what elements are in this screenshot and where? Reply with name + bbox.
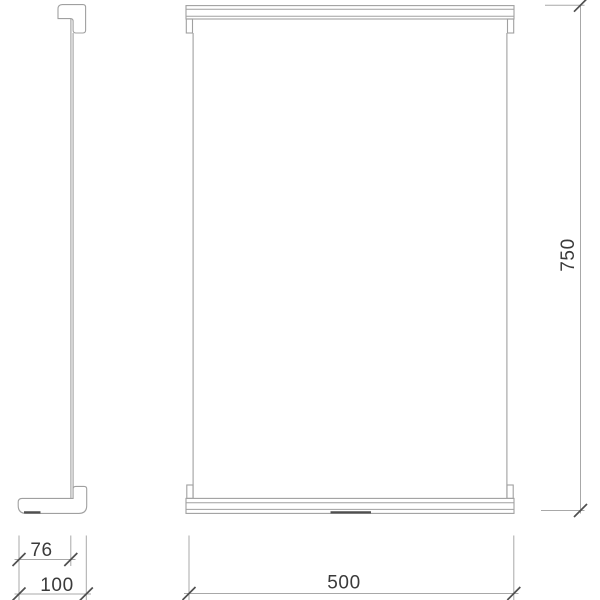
bottom-left-end-tab — [187, 485, 193, 498]
top-left-end-tab — [186, 19, 192, 33]
top-right-end-tab — [508, 19, 514, 33]
front-top-rail — [186, 6, 514, 19]
front-bottom-rail — [186, 498, 514, 513]
bottom-right-end-tab — [507, 485, 513, 498]
side-profile-view — [18, 5, 87, 514]
dimension-label-depth-inner: 76 — [30, 540, 52, 561]
drawing-canvas: 750 500 76 100 — [0, 0, 600, 600]
dimension-height: 750 — [541, 0, 587, 517]
dimension-label-depth-overall: 100 — [40, 575, 74, 596]
dimension-label-width: 500 — [327, 573, 361, 594]
dimension-width: 500 — [183, 536, 521, 600]
side-foot-profile — [18, 486, 87, 513]
front-view — [186, 6, 514, 514]
side-top-rail-profile — [58, 5, 86, 33]
technical-drawing: 750 500 76 100 — [0, 0, 600, 600]
dimension-label-height: 750 — [558, 238, 579, 272]
